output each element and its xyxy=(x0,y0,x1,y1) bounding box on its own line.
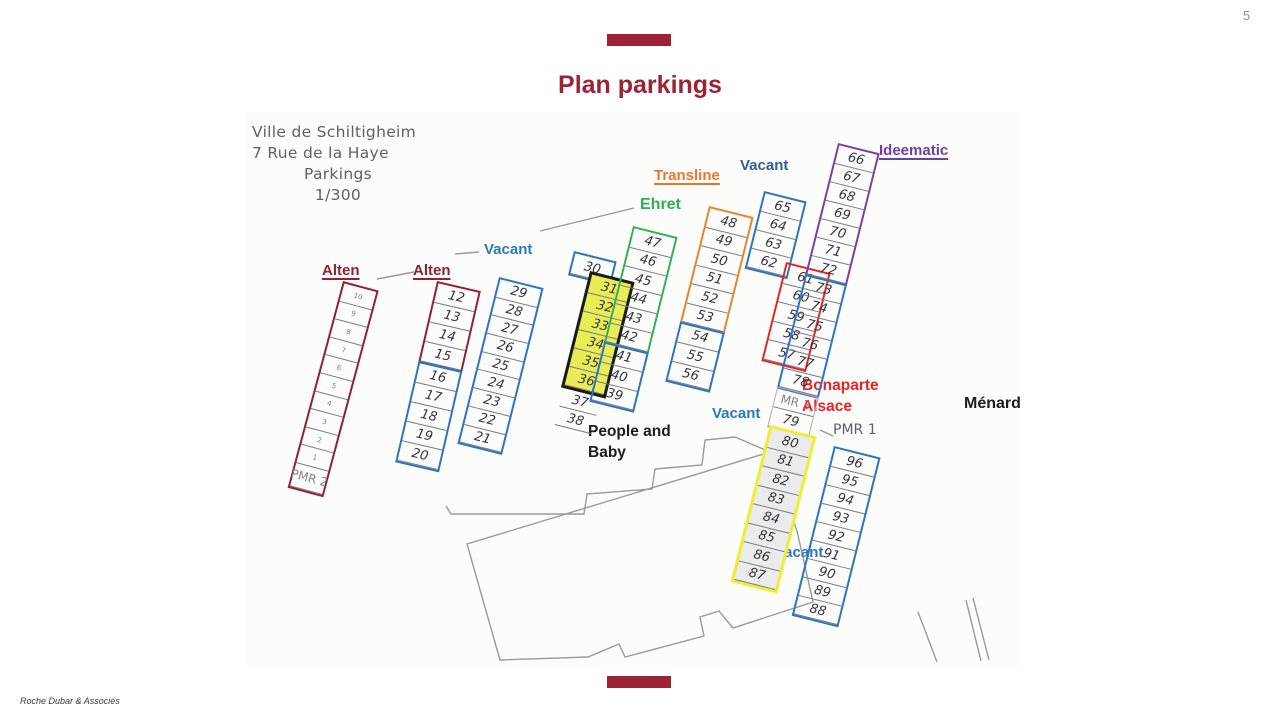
label-transline: Transline xyxy=(654,166,720,186)
label-ehret: Ehret xyxy=(640,194,681,216)
label-pmr-1: PMR 1 xyxy=(833,421,877,440)
scan-header-line: 7 Rue de la Haye xyxy=(252,143,424,164)
label-people-and-baby: People and Baby xyxy=(588,422,671,464)
label-vacant-1: Vacant xyxy=(484,240,532,260)
scan-header-line: 1/300 xyxy=(252,185,424,206)
label-vacant-2: Vacant xyxy=(740,156,788,176)
page-number: 5 xyxy=(1243,8,1250,23)
label-alten-2: Alten xyxy=(413,261,451,281)
label-vacant-3: Vacant xyxy=(712,404,760,424)
scan-header-line: Parkings xyxy=(252,164,424,185)
top-accent-bar xyxy=(607,34,671,46)
label-ideematic: Ideematic xyxy=(879,141,948,161)
bottom-accent-bar xyxy=(607,676,671,688)
slide: Plan parkings 5 Ville de Schiltigheim7 R… xyxy=(0,0,1280,719)
label-menard: Ménard xyxy=(964,393,1021,415)
scan-header-text: Ville de Schiltigheim7 Rue de la HayePar… xyxy=(252,122,424,206)
label-alten-1: Alten xyxy=(322,261,360,281)
footer-company-name: Roche Dubar & Associés xyxy=(20,696,120,706)
scan-header-line: Ville de Schiltigheim xyxy=(252,122,424,143)
page-title: Plan parkings xyxy=(0,71,1280,100)
